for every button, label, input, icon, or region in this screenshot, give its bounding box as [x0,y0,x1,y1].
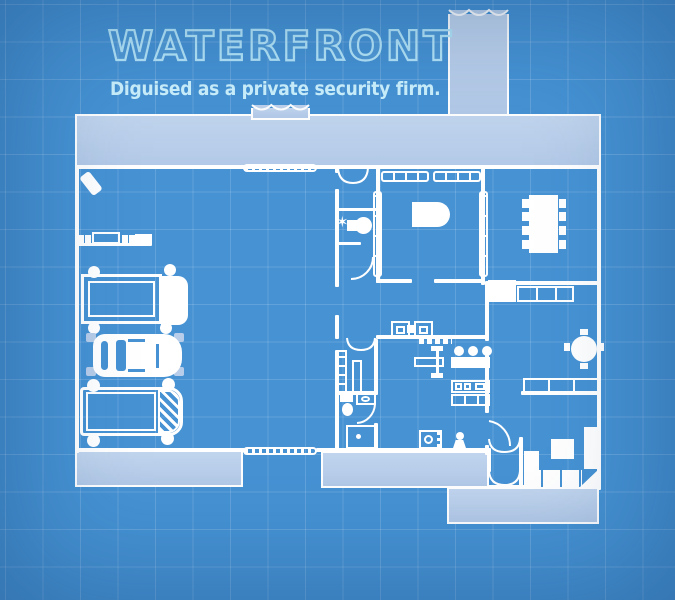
barbell-plate-bottom [431,373,443,378]
round-table-chair-w [564,343,570,351]
side-table [407,325,415,333]
sink-basin-2 [464,383,471,390]
vestibule-door-lower [488,470,521,487]
wall-south-garage [75,448,245,452]
van-hood [158,390,180,433]
vanity-basin [361,396,370,402]
top-walkway [75,114,601,169]
dining-chair-l2 [522,212,529,221]
sideboard [488,280,516,302]
dining-chair-r4 [559,240,566,249]
washing-machine-panel [437,432,442,447]
executive-desk [412,202,450,227]
coffee-table [551,439,574,459]
bar-stool-3 [482,346,492,356]
north-driveway [448,14,509,118]
workbench-toolbox [135,234,152,244]
living-door-arc [488,420,511,447]
bar-stool-1 [454,346,464,356]
stove-top [475,383,485,390]
shower-drain [356,434,361,439]
wall-west [75,165,79,453]
bathroom-door-arc [356,403,376,424]
office-window-west [373,191,382,277]
dining-chair-r3 [559,226,566,235]
patio-lower [447,487,599,524]
page-subtitle: Diguised as a private security firm. [110,78,440,100]
driveway-scallop-edge [448,6,509,20]
wall-shelf-dashes [419,339,452,344]
wall-office-south-b [434,279,485,283]
sedan-side-line-bottom [128,369,145,372]
dining-chair-r1 [559,199,566,208]
round-table-chair-e [598,343,604,351]
dining-table [529,195,558,253]
dining-chair-l3 [522,226,529,235]
bar-stool-2 [468,346,478,356]
bar-counter [451,357,490,368]
dining-chair-l4 [522,240,529,249]
statue-head [456,432,464,440]
closet-double-door [346,337,376,352]
south-west-pad [75,450,243,487]
sedan-windshield [116,340,126,371]
entrance-double-door [337,167,369,185]
powder-room-door-arc [350,256,374,280]
dining-chair-r2 [559,212,566,221]
round-table [571,336,597,362]
workbench-box-2 [85,235,91,243]
workbench-box-1 [78,235,84,243]
washing-machine-door [424,435,433,444]
sedan-rear-window [101,341,108,370]
patio-upper [321,451,489,488]
wall-garage-east-b [335,189,339,287]
fancy-toilet-bowl [355,217,372,234]
sectional-bottom [524,470,582,487]
stoop-scallop-edge [251,101,310,114]
workbench-box-3 [122,235,128,243]
wall-office-south-a [376,279,412,283]
barbell-plate-top [431,346,443,351]
van-body-inner [86,392,156,431]
wall-powder-south [335,242,361,245]
wall-garage-east-c [335,315,339,339]
closet-shelves [337,350,347,394]
round-table-chair-n [580,329,588,335]
box-truck-cab [161,276,188,325]
armchair-2 [414,321,433,339]
toilet-tank [340,395,353,402]
office-window-north-1 [381,171,429,182]
cabinet-row [517,286,574,302]
blueprint-canvas: ✶ [0,0,675,600]
weight-bench [414,357,444,367]
wall-sofa [523,378,601,394]
truck-wheel-tr [164,264,176,276]
garage-door-south [243,447,317,455]
round-table-chair-s [580,363,588,369]
page-title: WATERFRONT [108,22,454,70]
box-truck-cargo-inner [88,281,155,317]
toilet-bowl [342,403,353,416]
sink-basin-1 [455,383,462,390]
office-window-north-2 [433,171,481,182]
sectional-right [584,427,599,469]
dining-chair-l1 [522,199,529,208]
closet-cabinet [352,360,362,393]
shower [346,425,376,449]
office-window-east [479,191,488,277]
kitchen-counter-lower [451,394,490,406]
workbench-crate [92,232,120,244]
sedan-vent-line [156,344,159,368]
garage-door-north [243,164,317,172]
sedan-side-line-top [128,339,145,342]
